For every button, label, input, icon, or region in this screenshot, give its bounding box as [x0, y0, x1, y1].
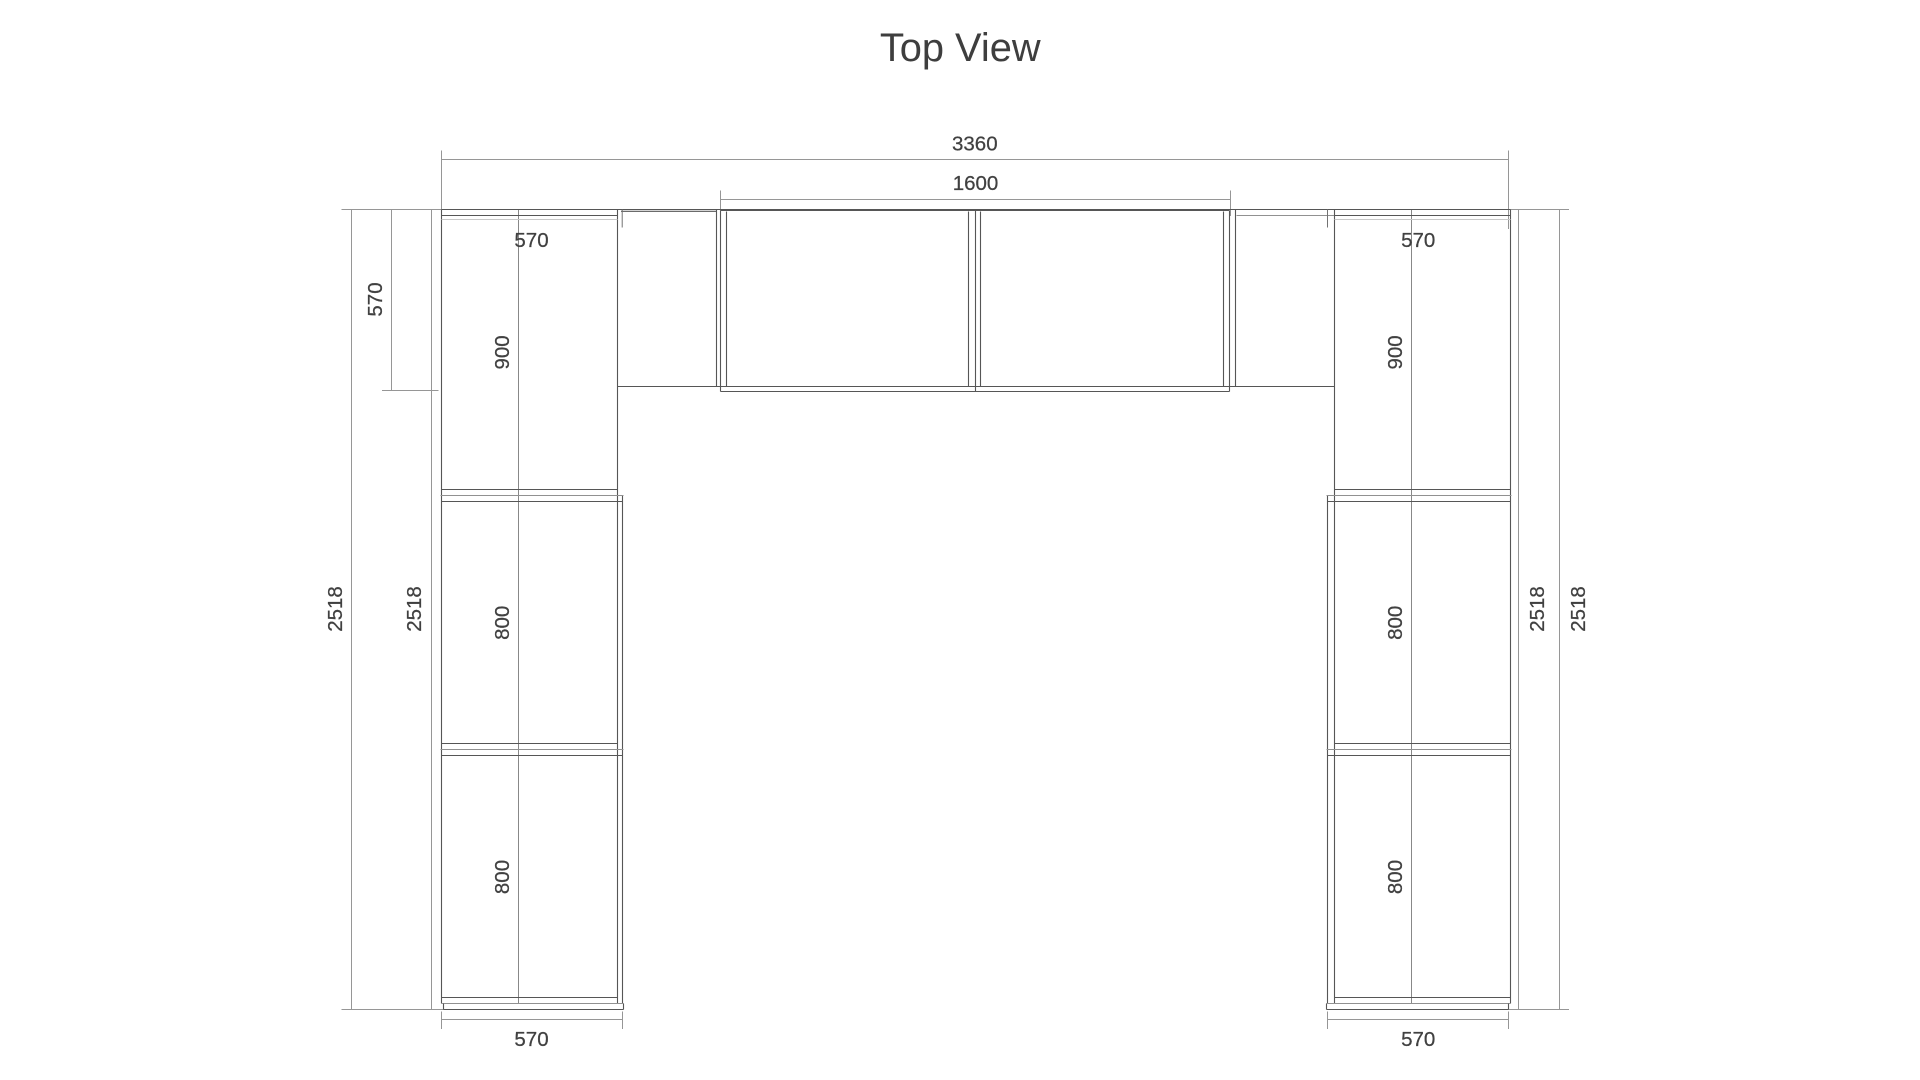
svg-text:800: 800: [1384, 860, 1407, 894]
svg-text:2518: 2518: [403, 586, 426, 632]
svg-text:570: 570: [1401, 229, 1435, 252]
svg-text:900: 900: [1384, 335, 1407, 369]
svg-text:900: 900: [491, 335, 514, 369]
svg-text:2518: 2518: [1567, 586, 1590, 632]
svg-text:2518: 2518: [1526, 586, 1549, 632]
svg-text:800: 800: [491, 860, 514, 894]
svg-text:570: 570: [1401, 1028, 1435, 1051]
svg-text:800: 800: [1384, 606, 1407, 640]
svg-text:800: 800: [491, 606, 514, 640]
svg-text:2518: 2518: [324, 586, 347, 632]
svg-text:1600: 1600: [953, 172, 999, 195]
svg-text:3360: 3360: [952, 133, 998, 156]
svg-text:570: 570: [514, 1028, 548, 1051]
svg-text:Top View: Top View: [880, 26, 1041, 70]
svg-text:570: 570: [364, 282, 387, 316]
svg-text:570: 570: [514, 229, 548, 252]
